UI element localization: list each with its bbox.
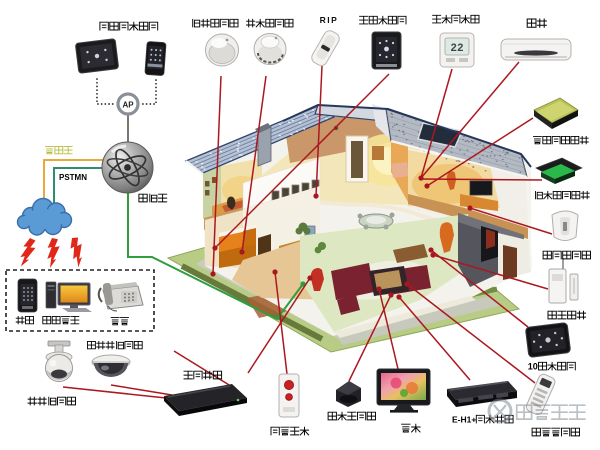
svg-text:RIP: RIP [320,15,339,25]
svg-text:10: 10 [528,362,538,372]
svg-text:AP: AP [122,101,134,110]
svg-text:PSTMN: PSTMN [59,173,87,182]
svg-text:E-H1+: E-H1+ [452,415,476,425]
svg-text:22: 22 [450,43,463,55]
